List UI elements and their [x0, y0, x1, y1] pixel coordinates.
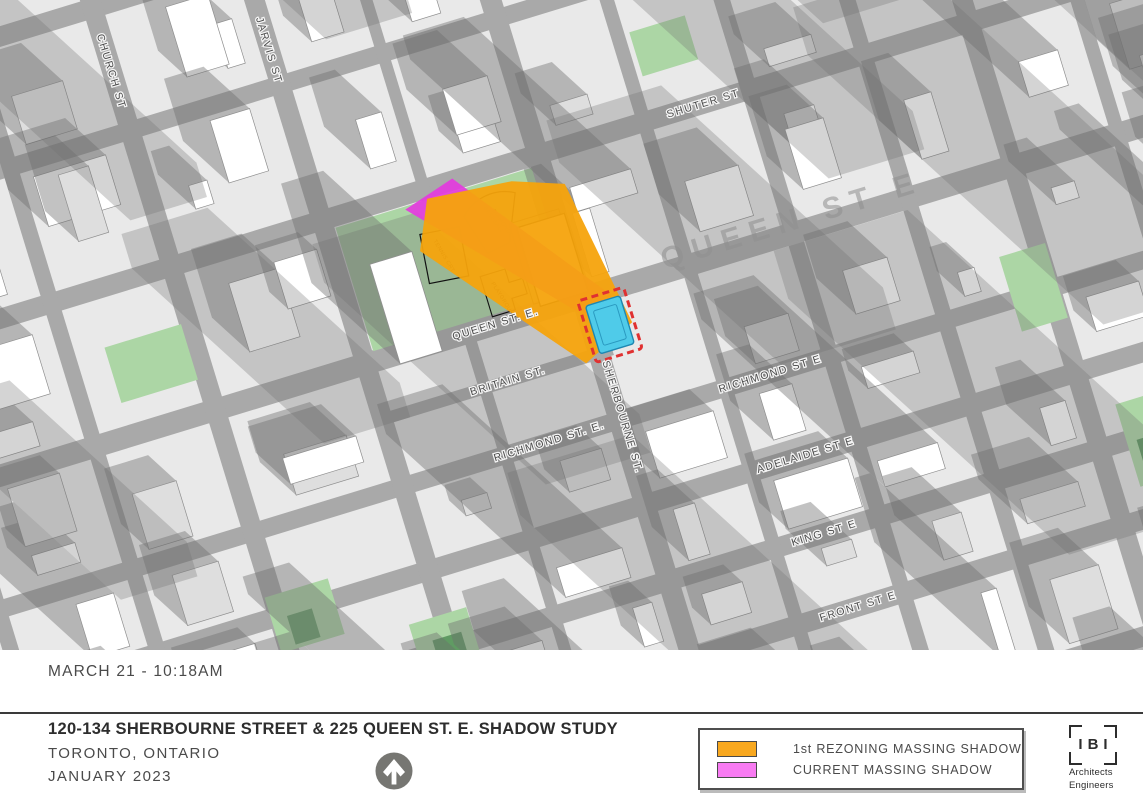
page-title: 120-134 SHERBOURNE STREET & 225 QUEEN ST… [48, 720, 618, 739]
logo-line-engineers: Engineers [1069, 780, 1125, 791]
legend-label-current: CURRENT MASSING SHADOW [793, 763, 992, 777]
legend-label-rezoning: 1st REZONING MASSING SHADOW [793, 742, 1022, 756]
north-arrow-icon [374, 751, 414, 791]
ibi-logo-mark: IBI [1069, 725, 1117, 765]
legend: 1st REZONING MASSING SHADOW CURRENT MASS… [698, 728, 1024, 790]
shadow-study-map: TENNIS CRTBASEBALLDIAMONDPLAYGROUNDCHURC… [0, 0, 1143, 650]
title-date: JANUARY 2023 [48, 768, 172, 785]
ibi-logo: IBI Architects Engineers [1069, 725, 1125, 791]
rezoning-shadow-swatch [717, 741, 757, 757]
map-canvas: TENNIS CRTBASEBALLDIAMONDPLAYGROUNDCHURC… [0, 0, 1143, 650]
shadow-study-sheet: TENNIS CRTBASEBALLDIAMONDPLAYGROUNDCHURC… [0, 0, 1143, 806]
rotated-map-group: TENNIS CRTBASEBALLDIAMONDPLAYGROUNDCHURC… [0, 0, 1143, 650]
logo-line-architects: Architects [1069, 767, 1125, 778]
title-location: TORONTO, ONTARIO [48, 745, 220, 762]
current-shadow-swatch [717, 762, 757, 778]
timestamp-label: MARCH 21 - 10:18AM [48, 663, 224, 681]
legend-row-rezoning: 1st REZONING MASSING SHADOW [717, 741, 1022, 757]
bracket-corner-icon [1104, 752, 1117, 765]
title-divider [0, 712, 1143, 714]
legend-row-current: CURRENT MASSING SHADOW [717, 762, 1022, 778]
bracket-corner-icon [1069, 752, 1082, 765]
bracket-corner-icon [1069, 725, 1082, 738]
bracket-corner-icon [1104, 725, 1117, 738]
